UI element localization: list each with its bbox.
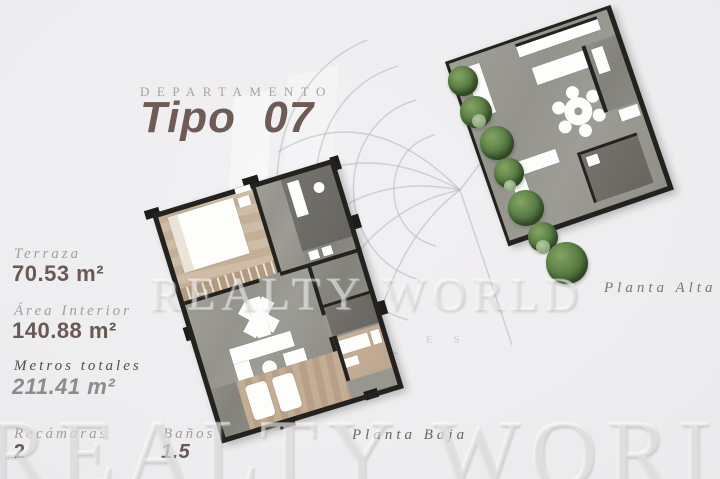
bush [504, 180, 516, 192]
planta-baja-label: Planta Baja [352, 427, 468, 444]
flyer-canvas: DEPARTAMENTO Tipo 07 Terraza 70.53 m² Ár… [0, 0, 720, 479]
recamaras-label: Recámaras [14, 426, 109, 443]
floor-plan-planta-baja [152, 158, 404, 443]
recamaras-value: 2 [14, 441, 26, 464]
tree [546, 242, 588, 284]
page-title: Tipo 07 [140, 93, 333, 143]
header: DEPARTAMENTO Tipo 07 [140, 84, 333, 143]
watermark-tagline-fragment: E S [426, 334, 469, 346]
tree [480, 126, 514, 160]
metros-totales-value: 211.41 m² [12, 374, 115, 400]
tree [448, 66, 478, 96]
pillar [376, 300, 389, 316]
area-interior-value: 140.88 m² [12, 318, 117, 344]
bush [472, 114, 486, 128]
pillar [349, 214, 362, 230]
banos-value: 1.5 [161, 441, 190, 464]
planta-alta-label: Planta Alta [604, 280, 716, 297]
metros-totales-label: Metros totales [14, 358, 142, 375]
terraza-value: 70.53 m² [12, 261, 104, 287]
pillar [363, 388, 379, 401]
tree [508, 190, 544, 226]
